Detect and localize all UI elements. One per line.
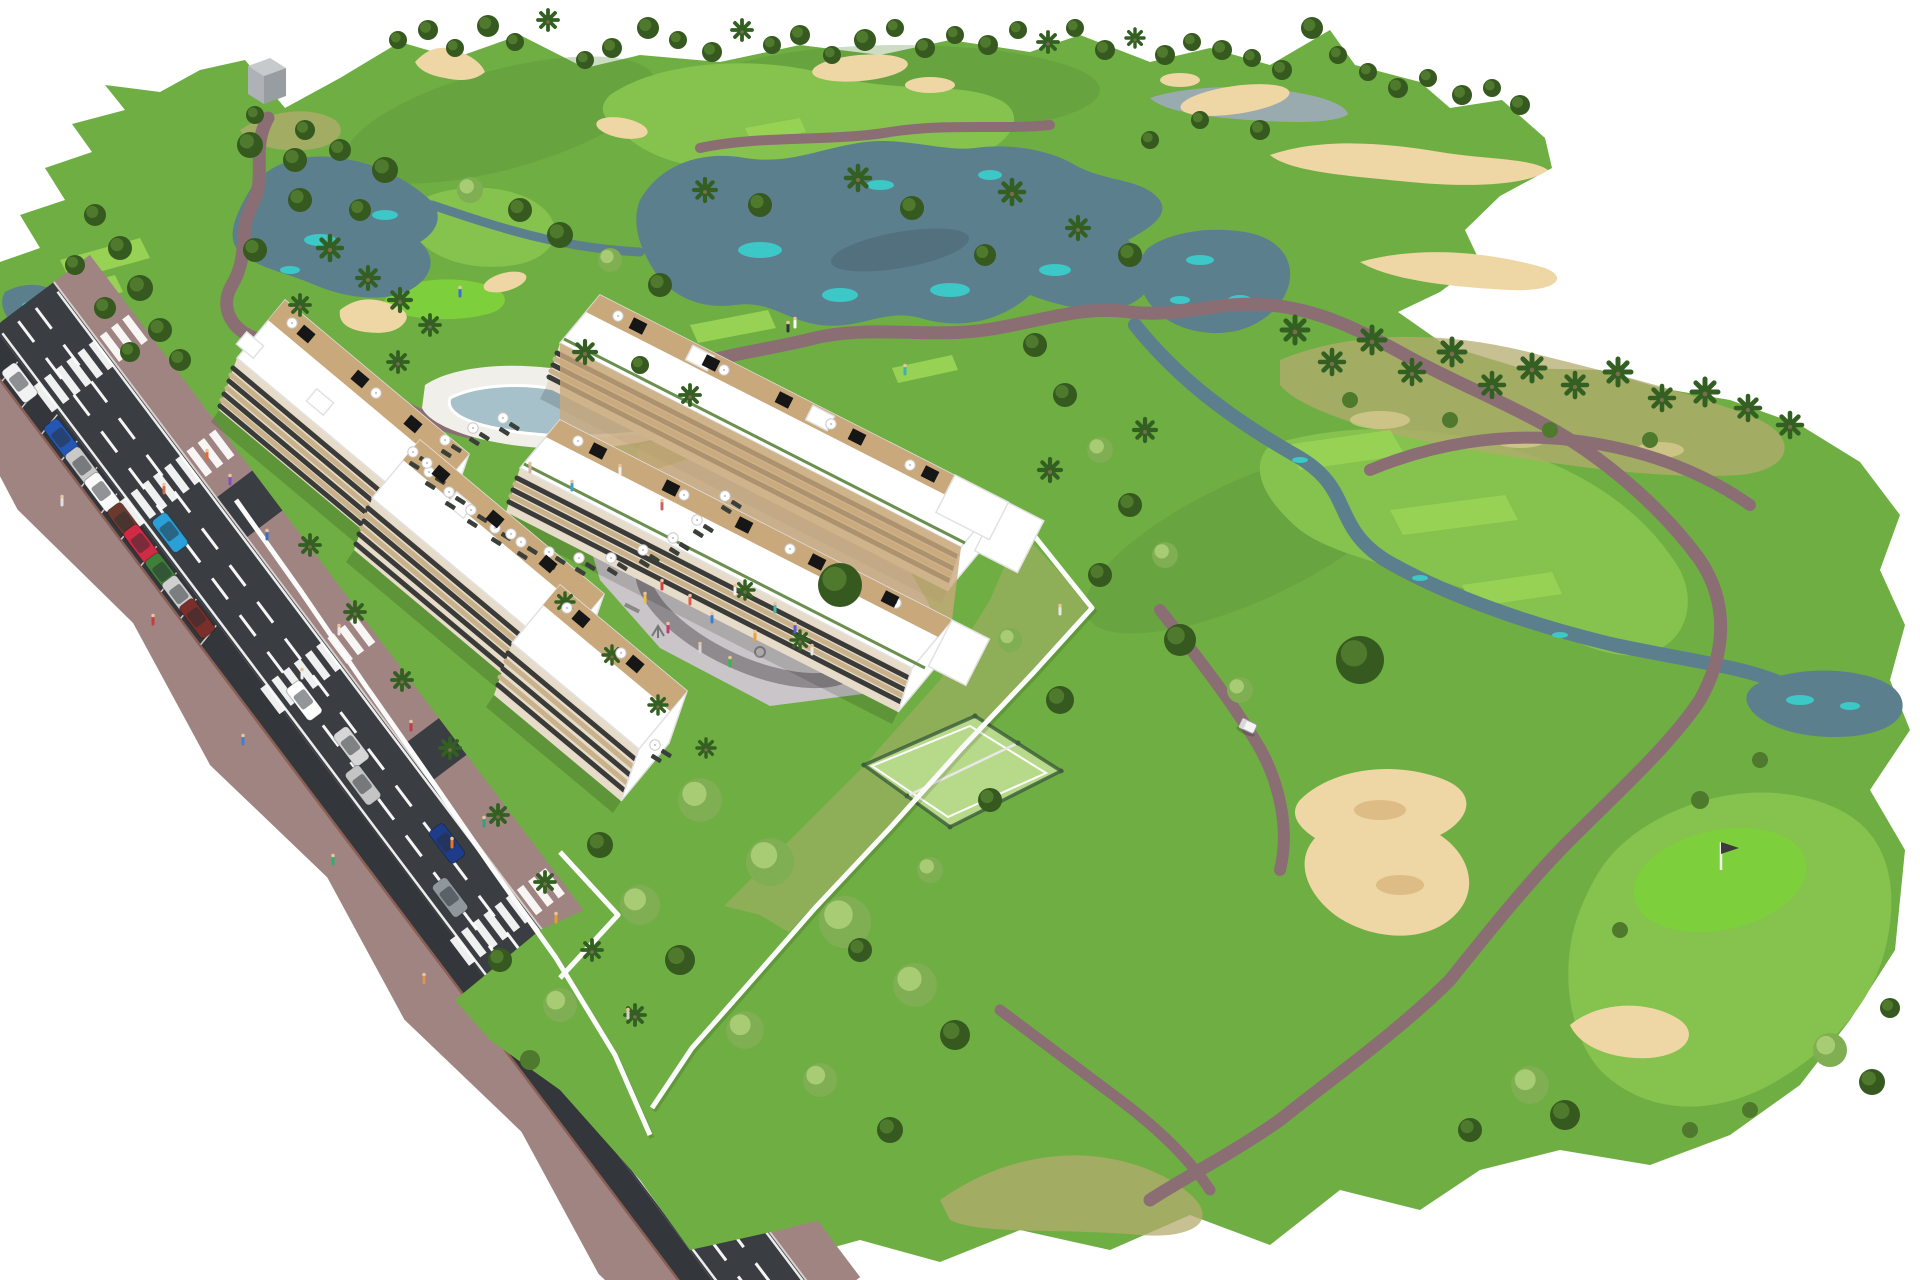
bush [1752, 752, 1768, 768]
bunker [905, 77, 955, 93]
bush [1342, 392, 1358, 408]
bush [1682, 1122, 1698, 1138]
bunker-shading [1354, 800, 1406, 820]
site-plan-render: Aerial 3D render of golf resort apartmen… [0, 0, 1920, 1280]
bunker-shading [1376, 875, 1424, 895]
bush [1442, 412, 1458, 428]
bunker [1160, 73, 1200, 87]
bush [1612, 922, 1628, 938]
bush [1691, 791, 1709, 809]
sandy-ground [1350, 411, 1410, 429]
bush [1742, 1102, 1758, 1118]
bush [520, 1050, 540, 1070]
bush [1542, 422, 1558, 438]
bush [1642, 432, 1658, 448]
utility-structure [248, 58, 286, 104]
